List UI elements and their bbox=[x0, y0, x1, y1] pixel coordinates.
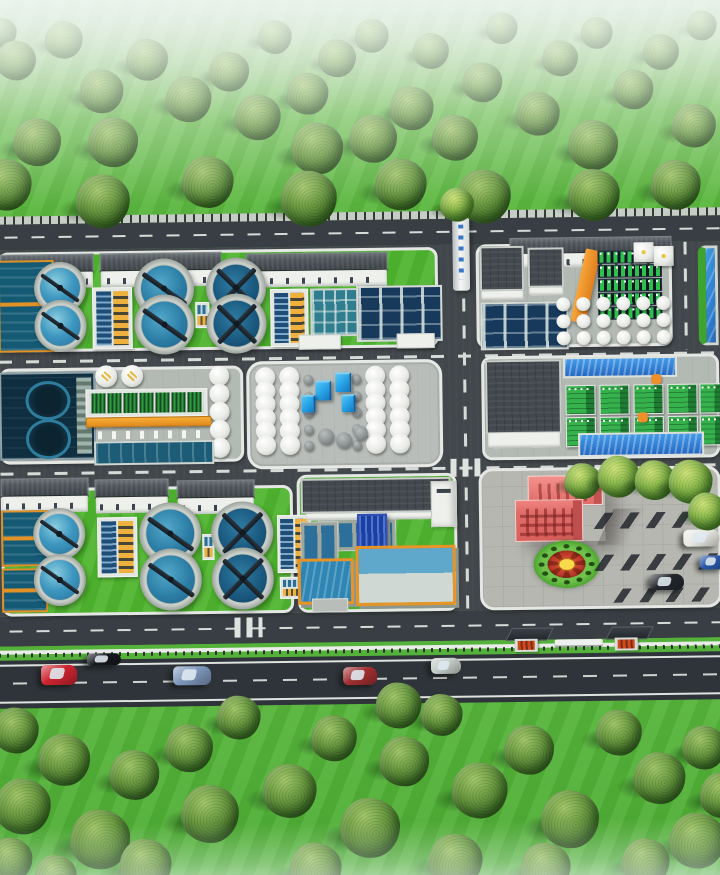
tree bbox=[621, 838, 670, 875]
cl-hub-icon bbox=[58, 323, 63, 328]
parked-van bbox=[683, 529, 719, 546]
tree bbox=[281, 170, 338, 227]
f-wall-icon bbox=[481, 291, 522, 301]
t-cn-icon bbox=[119, 839, 172, 875]
bm-r1-icon bbox=[25, 381, 70, 421]
tree bbox=[672, 103, 717, 148]
f-roof-icon bbox=[485, 359, 562, 434]
equipment-gallery bbox=[85, 388, 207, 418]
highway-car bbox=[87, 653, 121, 665]
tk-icon bbox=[304, 441, 314, 451]
crosswalk-center bbox=[450, 458, 480, 476]
tree bbox=[462, 62, 503, 103]
b-wall-icon bbox=[247, 270, 387, 287]
tree bbox=[374, 158, 427, 211]
tk-icon bbox=[617, 330, 631, 344]
blue-container bbox=[335, 372, 351, 392]
highway-car bbox=[173, 666, 211, 685]
t-cn-icon bbox=[0, 778, 51, 835]
tk-icon bbox=[304, 424, 314, 434]
reservoir-pond bbox=[698, 245, 719, 345]
tk-icon bbox=[596, 297, 610, 311]
leafy-tree bbox=[688, 492, 720, 530]
t-cn-icon bbox=[340, 798, 401, 859]
t-cn-icon bbox=[379, 736, 430, 787]
tree bbox=[568, 169, 621, 222]
clarifier-tank bbox=[211, 547, 274, 610]
ch-win-icon bbox=[458, 225, 464, 280]
tree bbox=[181, 156, 234, 209]
biofilter-row bbox=[598, 278, 662, 292]
tree bbox=[286, 72, 329, 115]
car-glass-icon bbox=[691, 532, 707, 542]
rb-front-icon bbox=[515, 499, 584, 542]
gate-kiosk bbox=[608, 626, 650, 651]
t-cn-icon bbox=[581, 17, 613, 49]
concrete-pad bbox=[312, 598, 348, 612]
storage-silo bbox=[633, 242, 653, 262]
t-cn-icon bbox=[289, 842, 342, 875]
roadside-rail bbox=[555, 639, 603, 646]
tree bbox=[79, 69, 124, 114]
tank-cluster bbox=[556, 296, 671, 345]
t-cn-icon bbox=[686, 10, 716, 40]
t-cn-icon bbox=[672, 103, 717, 148]
tree bbox=[699, 772, 720, 819]
fb-core-icon bbox=[559, 559, 574, 570]
chemical-tank bbox=[121, 365, 143, 387]
tk-icon bbox=[556, 297, 570, 311]
clarifier-tank bbox=[34, 300, 87, 353]
cl-hub-icon bbox=[233, 285, 239, 291]
cl-hub-icon bbox=[57, 285, 62, 290]
tk-icon bbox=[616, 313, 630, 327]
tree bbox=[650, 160, 701, 211]
tk-icon bbox=[557, 331, 571, 345]
tk-icon bbox=[366, 434, 386, 454]
t-cn-icon bbox=[0, 158, 32, 211]
tree bbox=[428, 833, 483, 875]
tank-farm-right bbox=[365, 365, 410, 454]
gray-tank bbox=[354, 426, 368, 440]
tk-icon bbox=[637, 330, 651, 344]
t-cn-icon bbox=[209, 51, 250, 92]
tree bbox=[432, 114, 479, 161]
b-roof-icon bbox=[95, 479, 169, 499]
t-cn-icon bbox=[596, 709, 643, 756]
tree bbox=[258, 20, 292, 54]
tree bbox=[520, 842, 571, 875]
t-cn-icon bbox=[79, 69, 124, 114]
gate-kiosk bbox=[509, 628, 551, 653]
blue-container bbox=[301, 395, 315, 413]
equipment-skid bbox=[651, 374, 661, 384]
t-cn-icon bbox=[669, 812, 720, 869]
tk-icon bbox=[656, 313, 670, 327]
tk-icon bbox=[597, 331, 611, 345]
b-roof-icon bbox=[1, 478, 89, 498]
membrane-cabinet bbox=[565, 385, 595, 415]
pump-house bbox=[299, 334, 341, 350]
gray-tank bbox=[318, 428, 334, 444]
t-cn-icon bbox=[643, 34, 679, 70]
tree bbox=[0, 158, 32, 211]
process-unit bbox=[97, 517, 138, 578]
tree bbox=[349, 114, 398, 163]
cl-hub-icon bbox=[233, 321, 239, 327]
su-y-icon bbox=[118, 521, 134, 573]
tree bbox=[643, 34, 679, 70]
clarifier-tank bbox=[139, 548, 202, 611]
contact-basin-large bbox=[355, 545, 456, 606]
t-cn-icon bbox=[682, 725, 720, 770]
filter-basin bbox=[310, 288, 359, 337]
su-b-icon bbox=[280, 519, 293, 570]
tree bbox=[581, 17, 613, 49]
process-unit bbox=[92, 287, 133, 350]
tk-icon bbox=[352, 440, 362, 450]
t-cn-icon bbox=[432, 114, 479, 161]
pump-row bbox=[98, 430, 206, 439]
t-cn-icon bbox=[0, 707, 39, 754]
tree bbox=[669, 812, 720, 869]
tree bbox=[165, 76, 212, 123]
t-cn-icon bbox=[504, 724, 555, 775]
equipment-skid bbox=[638, 412, 648, 422]
membrane-cabinet bbox=[667, 384, 697, 414]
k-body-icon bbox=[615, 637, 639, 650]
t-cn-icon bbox=[451, 762, 508, 819]
clarifier-tank bbox=[33, 508, 86, 561]
su-b-icon bbox=[101, 521, 117, 573]
tree bbox=[289, 842, 342, 875]
tree bbox=[45, 21, 83, 59]
blue-container bbox=[315, 380, 331, 400]
tree bbox=[0, 837, 33, 875]
t-cn-icon bbox=[542, 40, 578, 76]
gallery-base bbox=[86, 416, 212, 428]
tk-icon bbox=[616, 296, 630, 310]
scene-rotor bbox=[0, 0, 720, 875]
tree bbox=[413, 33, 449, 69]
k-body-icon bbox=[515, 639, 539, 652]
t-cn-icon bbox=[258, 20, 292, 54]
road-centerline-v1 bbox=[461, 245, 469, 613]
tree bbox=[88, 117, 139, 168]
mixing-basin bbox=[0, 371, 96, 460]
t-cn-icon bbox=[621, 838, 670, 875]
t-cn-icon bbox=[374, 158, 427, 211]
tree bbox=[504, 724, 555, 775]
tk-icon bbox=[256, 435, 276, 455]
tk-icon bbox=[576, 314, 590, 328]
membrane-cabinet bbox=[699, 383, 720, 413]
t-cn-icon bbox=[76, 174, 131, 229]
tk-icon bbox=[577, 331, 591, 345]
t-cn-icon bbox=[462, 62, 503, 103]
scene-objects-layer bbox=[0, 0, 720, 875]
tree bbox=[485, 12, 517, 44]
f-wall-icon bbox=[488, 432, 560, 448]
gray-tank bbox=[336, 432, 352, 448]
car-glass-icon bbox=[657, 576, 672, 585]
settling-basin bbox=[94, 440, 214, 466]
su-b-icon bbox=[96, 291, 112, 345]
car-glass-icon bbox=[94, 655, 108, 662]
process-hall bbox=[528, 247, 565, 295]
annex-building bbox=[431, 481, 458, 527]
crosswalk-south bbox=[234, 617, 262, 637]
t-cn-icon bbox=[485, 12, 517, 44]
blue-container bbox=[341, 394, 355, 412]
t-cn-icon bbox=[568, 169, 621, 222]
tree bbox=[181, 785, 240, 844]
tree bbox=[0, 40, 36, 81]
clarifier-tank bbox=[206, 293, 267, 354]
t-cn-icon bbox=[355, 19, 389, 53]
tree bbox=[420, 694, 463, 737]
t-cn-icon bbox=[281, 170, 338, 227]
t-cn-icon bbox=[181, 785, 240, 844]
clarifier-tank bbox=[34, 554, 87, 607]
t-cn-icon bbox=[650, 160, 701, 211]
membrane-cabinet bbox=[633, 384, 663, 414]
tk-icon bbox=[303, 375, 313, 385]
clarifier-tank bbox=[134, 294, 195, 355]
t-cn-icon bbox=[126, 38, 169, 81]
tree bbox=[613, 69, 654, 110]
tree bbox=[596, 709, 643, 756]
tk-icon bbox=[280, 435, 300, 455]
tree bbox=[216, 695, 261, 740]
t-cn-icon bbox=[262, 764, 317, 819]
plant-aerial-render bbox=[0, 0, 720, 875]
tree bbox=[340, 798, 401, 859]
tk-icon bbox=[390, 433, 410, 453]
t-cn-icon bbox=[688, 492, 720, 530]
t-cn-icon bbox=[375, 682, 422, 729]
tree bbox=[451, 762, 508, 819]
t-cn-icon bbox=[0, 837, 33, 875]
tree bbox=[686, 10, 716, 40]
t-cn-icon bbox=[45, 21, 83, 59]
t-cn-icon bbox=[413, 33, 449, 69]
t-cn-icon bbox=[311, 715, 358, 762]
t-cn-icon bbox=[34, 855, 77, 875]
t-cn-icon bbox=[88, 117, 139, 168]
su-b-icon bbox=[274, 293, 289, 344]
f-wall-icon bbox=[529, 287, 563, 296]
tk-icon bbox=[556, 314, 570, 328]
tree bbox=[541, 790, 600, 849]
tk-icon bbox=[636, 313, 650, 327]
t-cn-icon bbox=[515, 91, 560, 136]
tree bbox=[126, 38, 169, 81]
parked-car bbox=[650, 574, 684, 590]
f-roof-icon bbox=[301, 477, 451, 514]
gs-icon bbox=[89, 392, 203, 413]
tk-icon bbox=[656, 296, 670, 310]
f-roof-icon bbox=[528, 247, 565, 288]
storage-silo bbox=[654, 246, 674, 266]
highway-car bbox=[431, 658, 461, 674]
tree bbox=[379, 736, 430, 787]
parked-car bbox=[700, 555, 720, 569]
b-roof-icon bbox=[246, 252, 388, 273]
t-cn-icon bbox=[568, 120, 619, 171]
highway-car bbox=[41, 665, 77, 685]
process-hall bbox=[480, 246, 525, 301]
tree bbox=[542, 40, 578, 76]
cl-hub-icon bbox=[57, 531, 62, 536]
tree bbox=[682, 725, 720, 770]
su-y-icon bbox=[113, 291, 129, 345]
t-cn-icon bbox=[613, 69, 654, 110]
tk-icon bbox=[596, 314, 610, 328]
tree bbox=[119, 839, 172, 875]
t-cn-icon bbox=[165, 76, 212, 123]
tree bbox=[0, 707, 39, 754]
scene-origin bbox=[0, 0, 720, 875]
t-cn-icon bbox=[428, 833, 483, 875]
tk-icon bbox=[657, 330, 671, 344]
tk-icon bbox=[351, 374, 361, 384]
t-cn-icon bbox=[349, 114, 398, 163]
f-roof-icon bbox=[480, 246, 525, 292]
cl-hub-icon bbox=[161, 322, 167, 328]
tree bbox=[76, 174, 131, 229]
t-cn-icon bbox=[520, 842, 571, 875]
tree bbox=[262, 764, 317, 819]
tree bbox=[209, 51, 250, 92]
tree bbox=[34, 855, 77, 875]
flower-bed bbox=[533, 540, 600, 588]
biofilter-row bbox=[598, 264, 662, 278]
pump-house bbox=[397, 333, 435, 348]
tk-icon bbox=[636, 296, 650, 310]
b-roof-icon bbox=[177, 479, 255, 499]
tree bbox=[355, 19, 389, 53]
road-centerline-v2 bbox=[683, 242, 687, 350]
car-glass-icon bbox=[48, 668, 64, 679]
tree bbox=[311, 715, 358, 762]
water-basin bbox=[578, 431, 704, 457]
t-cn-icon bbox=[541, 790, 600, 849]
t-cn-icon bbox=[440, 187, 474, 221]
t-cn-icon bbox=[420, 694, 463, 737]
tree bbox=[568, 120, 619, 171]
tk-icon bbox=[576, 297, 590, 311]
highway-car bbox=[343, 667, 377, 685]
tree bbox=[375, 682, 422, 729]
t-cn-icon bbox=[216, 695, 261, 740]
tree bbox=[0, 778, 51, 835]
bm-r2-icon bbox=[26, 419, 71, 459]
tree bbox=[515, 91, 560, 136]
tank-farm-left bbox=[255, 367, 300, 456]
t-cn-icon bbox=[0, 40, 36, 81]
t-cn-icon bbox=[286, 72, 329, 115]
t-cn-icon bbox=[181, 156, 234, 209]
membrane-cabinet bbox=[599, 384, 629, 414]
plant-building bbox=[246, 252, 388, 288]
cl-hub-icon bbox=[161, 286, 167, 292]
cl-hub-icon bbox=[57, 577, 62, 582]
membrane-hall bbox=[485, 359, 562, 448]
leafy-tree bbox=[440, 187, 474, 221]
